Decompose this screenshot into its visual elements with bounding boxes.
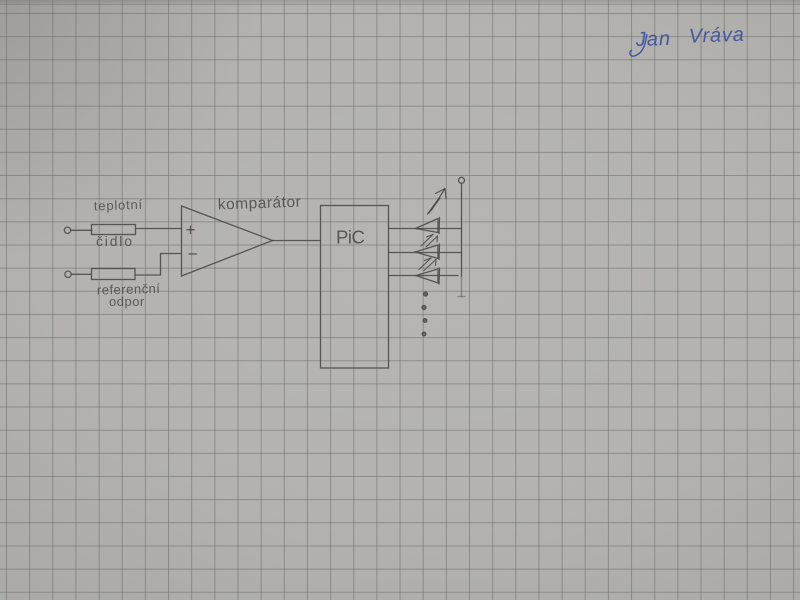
svg-text:odpor: odpor xyxy=(109,294,145,309)
svg-text:čidlo: čidlo xyxy=(96,233,134,249)
svg-text:Jan: Jan xyxy=(634,28,671,51)
svg-text:teplotní: teplotní xyxy=(94,197,144,214)
svg-text:PiC: PiC xyxy=(336,227,364,248)
svg-text:Vráva: Vráva xyxy=(688,24,745,48)
svg-text:komparátor: komparátor xyxy=(218,194,302,214)
